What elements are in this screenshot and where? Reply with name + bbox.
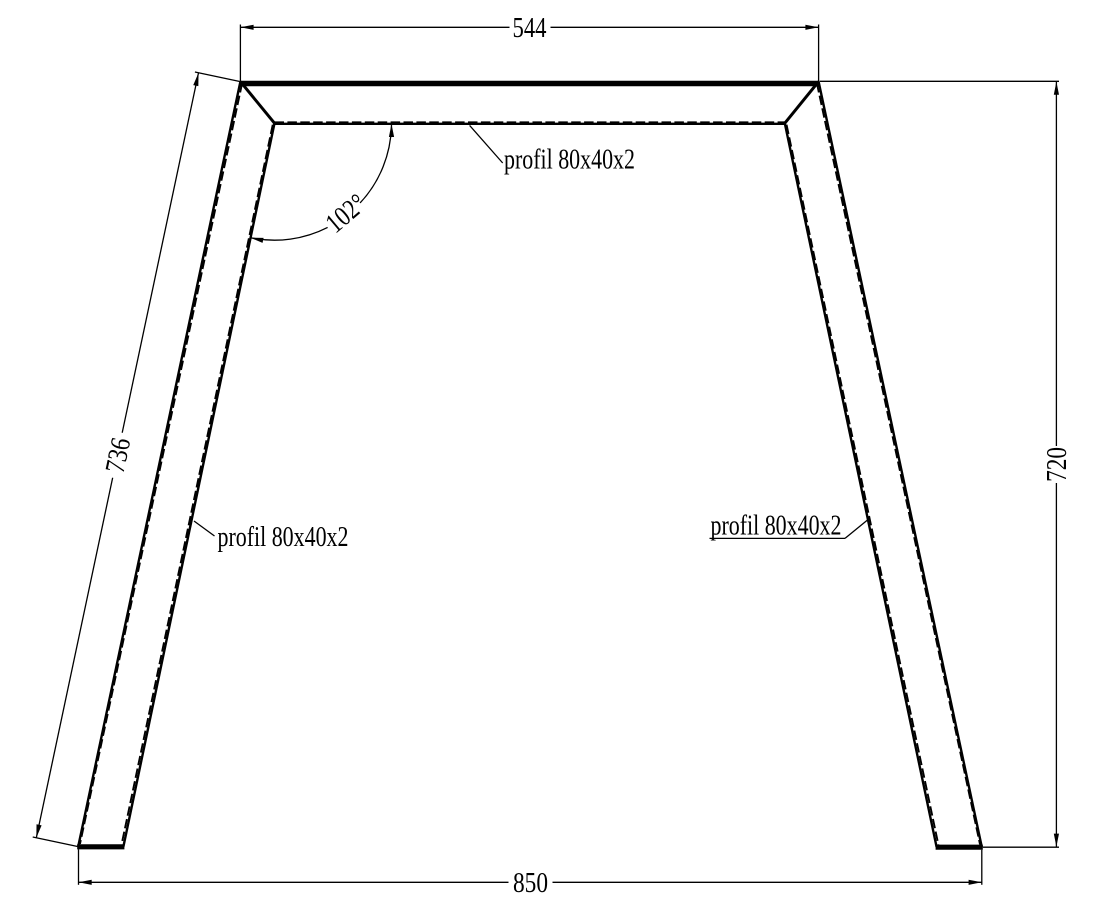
svg-text:720: 720 — [1042, 447, 1073, 482]
svg-text:profil 80x40x2: profil 80x40x2 — [218, 522, 349, 553]
svg-text:profil 80x40x2: profil 80x40x2 — [711, 511, 842, 542]
svg-text:850: 850 — [513, 868, 548, 899]
svg-text:544: 544 — [513, 13, 547, 44]
svg-text:profil 80x40x2: profil 80x40x2 — [504, 145, 635, 176]
